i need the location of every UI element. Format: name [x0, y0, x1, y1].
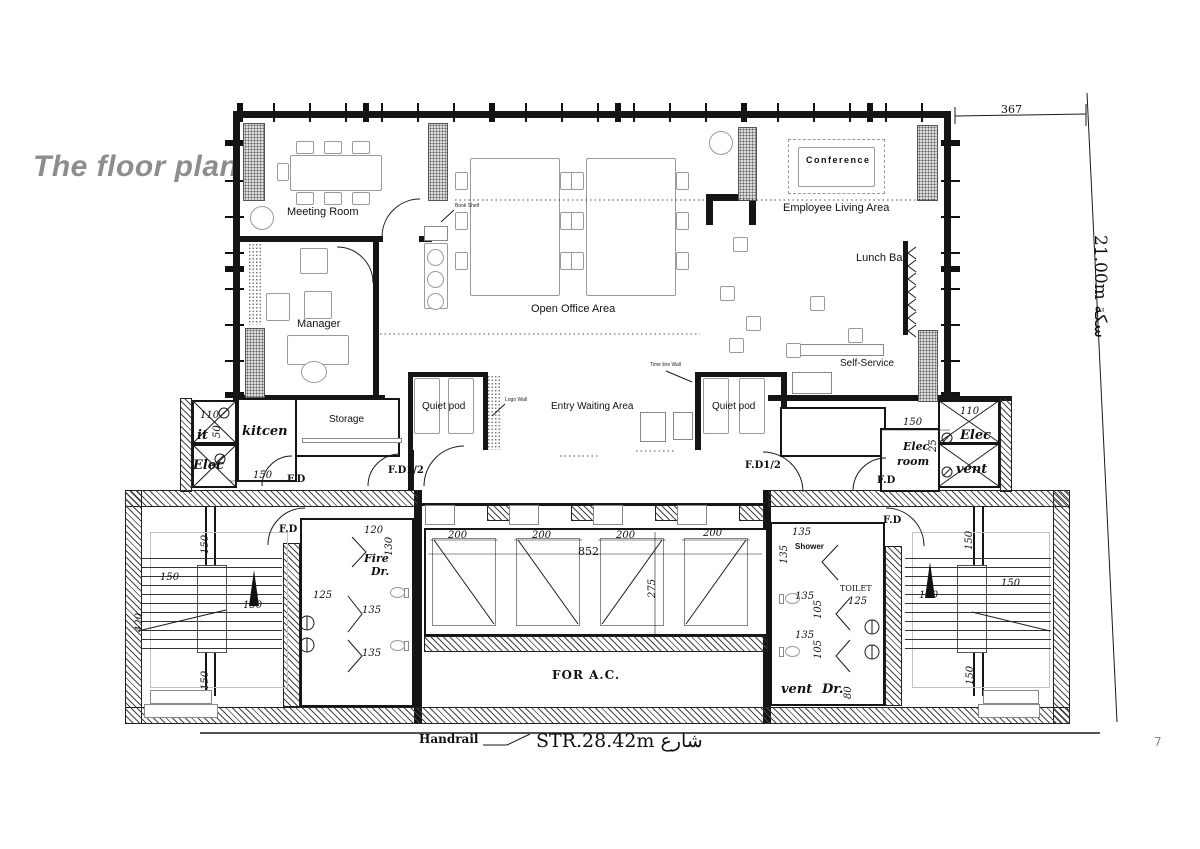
label-dim-150-lstair-3: 150 [243, 600, 262, 611]
label-dim-110-right: 110 [960, 406, 979, 417]
label-time-line-wall: Time line Wall [650, 362, 681, 368]
label-dim-135-right-2: 135 [779, 545, 790, 564]
label-dim-135-left-1: 135 [362, 605, 381, 616]
label-dim-275: 275 [647, 579, 658, 598]
label-handrail: Handrail [419, 732, 478, 746]
label-dim-200-shaft4: 200 [703, 528, 722, 539]
label-dim-125-left: 125 [313, 590, 332, 601]
label-fd-stair-left: F.D [279, 524, 297, 535]
label-dim-150-lstair-2: 150 [200, 535, 211, 554]
label-self-service: Self-Service [840, 358, 894, 369]
label-dim-110-left: 110 [200, 410, 219, 421]
label-logo-wall: Logo Wall [505, 397, 527, 403]
label-dim-135-left-2: 135 [362, 648, 381, 659]
label-quiet-pod-left: Quiet pod [422, 401, 465, 412]
label-dim-367: 367 [1001, 103, 1022, 116]
label-dim-150-lstair-1: 150 [160, 572, 179, 583]
label-elec-shaft-right: Elec [960, 428, 991, 443]
label-elec-room-line1: Elec [903, 440, 929, 453]
label-dim-125-right: 125 [848, 596, 867, 607]
label-dim-105-right-2: 105 [813, 640, 824, 659]
label-dr-room: Dr. [822, 682, 843, 697]
label-fd12-left: F.D1/2 [388, 465, 424, 476]
label-vent-room: vent [781, 682, 812, 697]
label-it-shaft: it [197, 428, 208, 443]
label-dim-150-elecroom: 150 [903, 417, 922, 428]
label-dim-105-right-1: 105 [813, 600, 824, 619]
label-conference: Conference [806, 155, 871, 165]
label-dim-200-shaft3: 200 [616, 530, 635, 541]
plan-linework [0, 0, 1200, 849]
label-dim-150-lstair-4: 150 [200, 671, 211, 690]
label-dim-130: 130 [384, 537, 395, 556]
label-lunch-bar: Lunch Bar [856, 252, 906, 264]
label-dim-135-right-1: 135 [792, 527, 811, 538]
label-fd-stair-right: F.D [883, 515, 901, 526]
label-shower: Shower [795, 542, 824, 551]
label-vent-shaft-right: vent [956, 462, 987, 477]
label-dim-150-rstair-2: 150 [1001, 578, 1020, 589]
label-fire-line2: Dr. [371, 565, 389, 578]
label-dim-135-right-3: 135 [795, 591, 814, 602]
label-book-shelf: Book Shelf [455, 203, 479, 209]
label-manager: Manager [297, 318, 340, 330]
label-kitcen: kitcen [242, 424, 288, 439]
label-dim-150-rstair-3: 150 [919, 590, 938, 601]
label-for-ac: FOR A.C. [552, 668, 620, 682]
label-dim-150-storage: 150 [253, 470, 272, 481]
label-open-office-area: Open Office Area [531, 303, 615, 315]
label-site-edge: 21.00m سكة [1090, 235, 1110, 338]
label-dim-150-rstair-4: 150 [965, 666, 976, 685]
label-fd12-right: F.D1/2 [745, 460, 781, 471]
label-quiet-pod-right: Quiet pod [712, 401, 755, 412]
label-dim-135-right-4: 135 [795, 630, 814, 641]
label-street: STR.28.42m شارع [536, 730, 703, 752]
label-dim-50-left: 50 [212, 425, 223, 438]
label-dim-150-rstair-1: 150 [964, 531, 975, 550]
label-meeting-room: Meeting Room [287, 206, 359, 218]
label-dim-80: 80 [843, 686, 854, 699]
label-fd-storage: F.D [287, 474, 305, 485]
label-dim-25-right: 25 [928, 439, 939, 452]
label-storage: Storage [329, 414, 364, 425]
label-elec-shaft-left: Elec [193, 458, 224, 473]
label-fd-elec-room: F.D [877, 475, 895, 486]
label-dim-852: 852 [578, 545, 599, 558]
label-entry-waiting-area: Entry Waiting Area [551, 401, 633, 412]
label-dim-420-lstair: 420 [134, 613, 145, 632]
label-elec-room-line2: room [897, 455, 929, 468]
label-dim-200-shaft2: 200 [532, 530, 551, 541]
label-dim-200-shaft1: 200 [448, 530, 467, 541]
label-dim-120: 120 [364, 525, 383, 536]
label-employee-living-area: Employee Living Area [783, 202, 889, 214]
label-toilet: TOILET [840, 584, 872, 593]
floor-plan-canvas: The floor plan 7 [0, 0, 1200, 849]
